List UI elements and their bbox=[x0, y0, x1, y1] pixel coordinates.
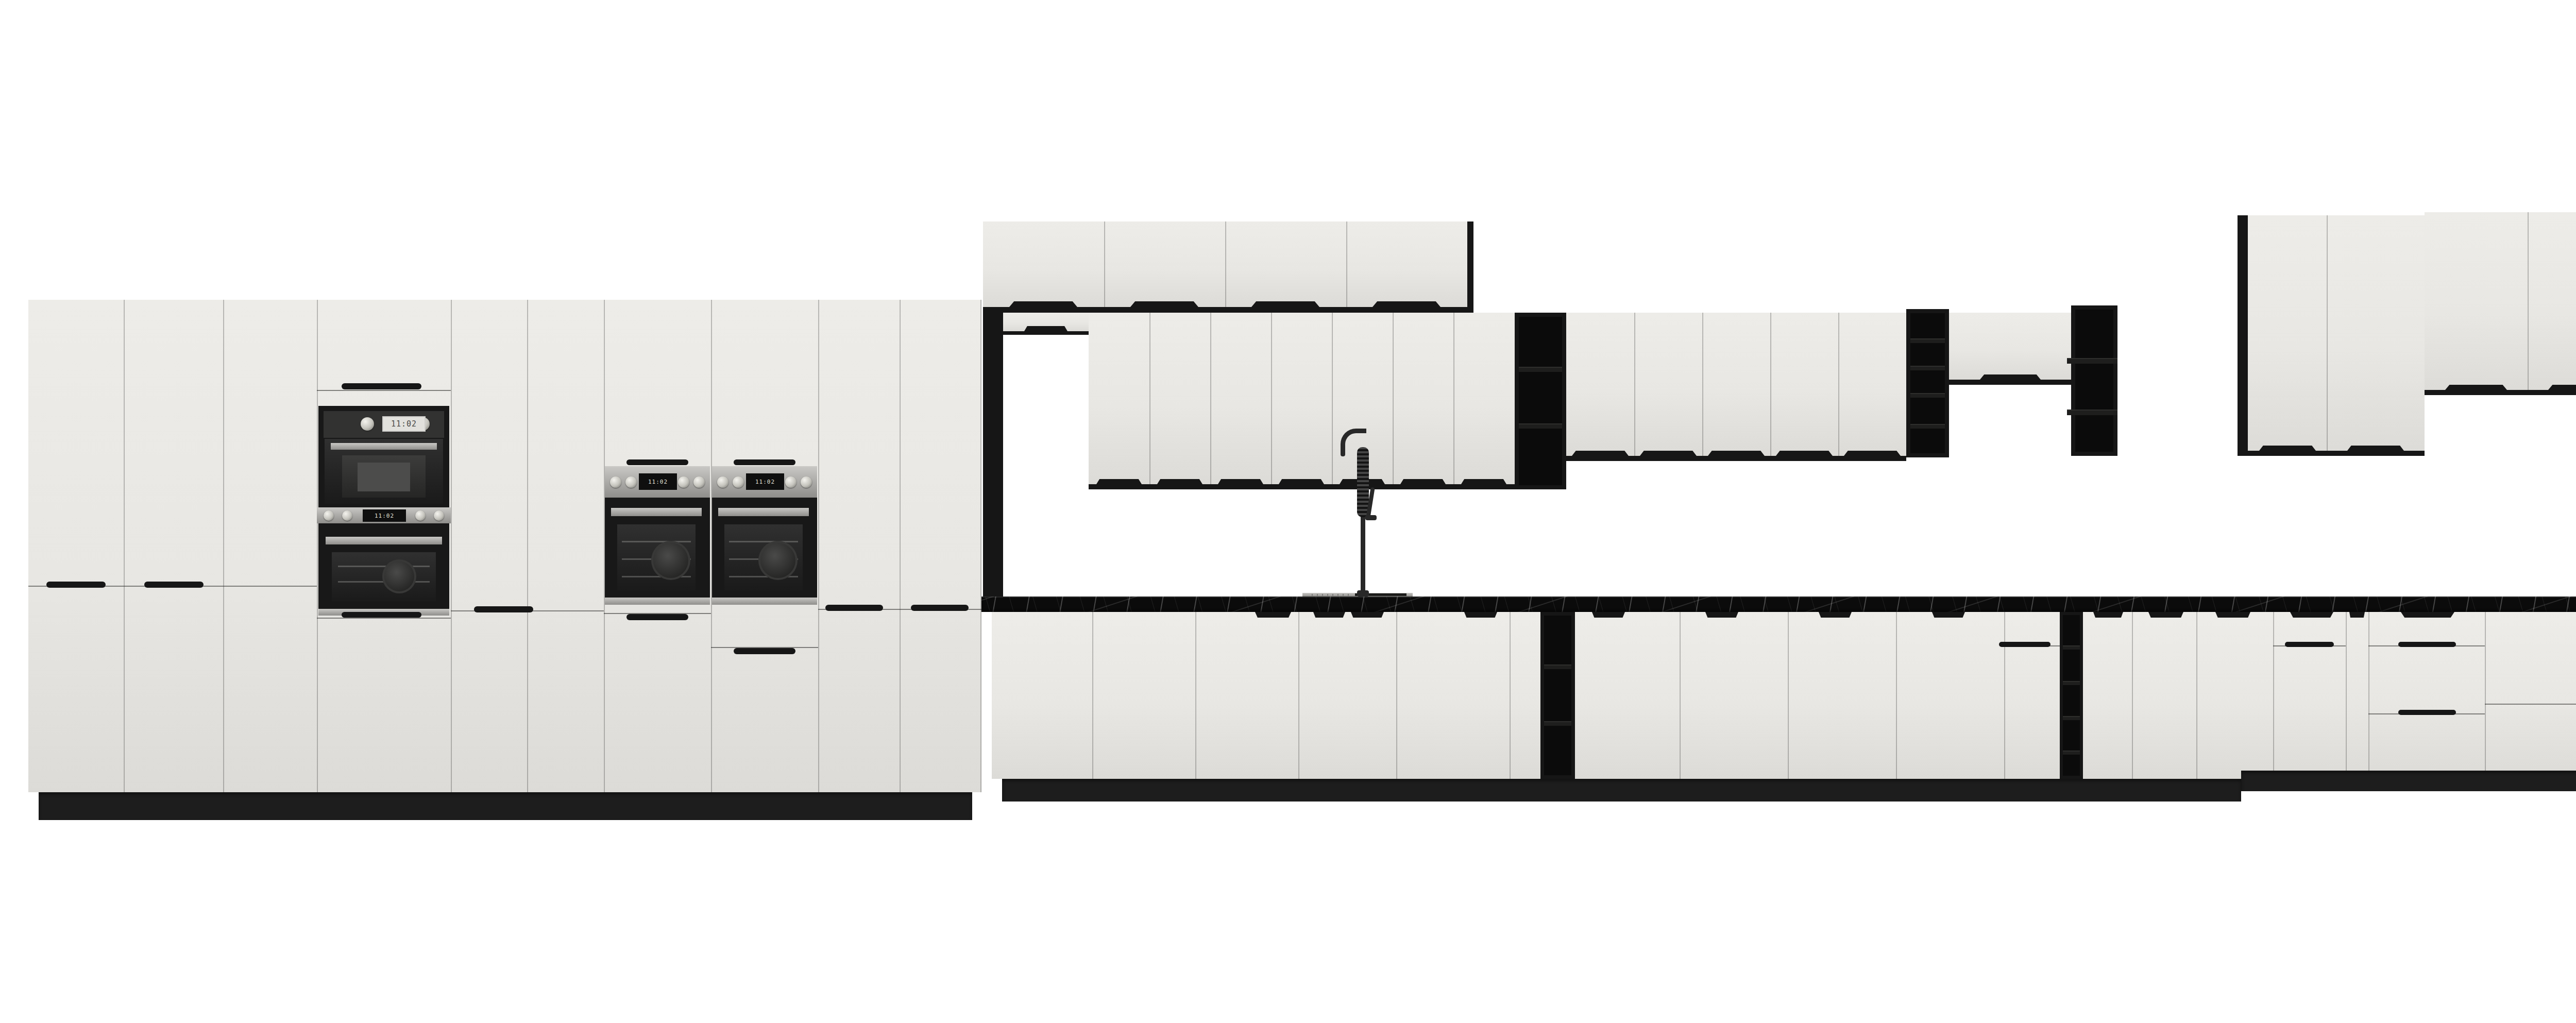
handle-tab bbox=[1980, 374, 2041, 380]
shelf-board bbox=[1519, 367, 1562, 372]
recessed-handle bbox=[911, 605, 969, 611]
faucet-lever-paddle bbox=[1365, 515, 1377, 520]
recessed-handle bbox=[626, 459, 688, 465]
cabinet-side-panel bbox=[2238, 215, 2248, 456]
handle-tab bbox=[1776, 451, 1833, 456]
tower-oven bbox=[318, 523, 449, 610]
handle-tab bbox=[1313, 612, 1345, 618]
oven-rack bbox=[622, 541, 691, 542]
cabinet-bottom-rail bbox=[1566, 456, 1906, 461]
handle-tab bbox=[1640, 451, 1697, 456]
door-seam bbox=[223, 300, 224, 792]
handle-tab bbox=[1157, 479, 1202, 484]
shelf-board bbox=[2063, 751, 2080, 755]
faucet-spout-tip bbox=[1341, 444, 1345, 456]
door-seam bbox=[2368, 612, 2369, 779]
tower-oven-control-band: 11:02 bbox=[317, 507, 451, 523]
door-seam bbox=[1838, 313, 1839, 456]
door-seam bbox=[2346, 612, 2347, 779]
door-seam bbox=[1396, 612, 1397, 779]
recessed-handle bbox=[474, 606, 533, 612]
plinth-left bbox=[39, 792, 972, 820]
handle-tab bbox=[1372, 301, 1440, 307]
oven-handle-bar bbox=[611, 508, 702, 516]
cabinet-side-panel bbox=[1467, 221, 1473, 313]
plinth-mid bbox=[1002, 779, 2241, 802]
recessed-handle bbox=[46, 582, 106, 588]
door-seam bbox=[1702, 313, 1703, 456]
oven-knob bbox=[434, 510, 444, 521]
door-seam bbox=[1634, 313, 1635, 456]
door-seam bbox=[1104, 221, 1105, 307]
door-seam bbox=[2485, 612, 2486, 779]
handle-tab bbox=[2259, 446, 2316, 451]
shelf-board bbox=[1910, 393, 1945, 398]
shelf-board bbox=[1544, 664, 1571, 669]
door-seam bbox=[2196, 612, 2197, 779]
oven-knob bbox=[610, 476, 621, 488]
door-seam bbox=[2004, 612, 2005, 779]
oven-knob bbox=[733, 476, 744, 488]
shelf-board bbox=[1519, 423, 1562, 429]
cabinet-bottom-rail bbox=[983, 307, 1473, 313]
shelf-board bbox=[1544, 721, 1571, 726]
faucet-riser bbox=[1361, 515, 1365, 596]
oven-knob bbox=[324, 510, 334, 521]
countertop bbox=[981, 596, 2576, 612]
oven-handle-bar bbox=[718, 508, 809, 516]
recessed-handle bbox=[2398, 710, 2456, 715]
tall-cabinet-run-left bbox=[28, 300, 981, 792]
recessed-handle bbox=[144, 582, 204, 588]
handle-tab bbox=[2148, 612, 2183, 618]
door-seam bbox=[1510, 612, 1511, 779]
oven-bottom-trim bbox=[605, 598, 710, 605]
door-seam bbox=[1271, 313, 1272, 484]
recessed-handle bbox=[2398, 642, 2456, 647]
door-seam bbox=[1346, 221, 1347, 307]
handle-tab bbox=[2349, 612, 2365, 618]
handle-tab bbox=[1400, 479, 1446, 484]
shelf-board bbox=[2067, 410, 2117, 415]
microwave-window bbox=[342, 455, 426, 498]
door-seam bbox=[1453, 313, 1454, 484]
door-seam bbox=[1332, 313, 1333, 484]
door-seam bbox=[900, 300, 901, 792]
handle-tab bbox=[2290, 612, 2333, 618]
microwave-control-strip: 11:02 bbox=[324, 411, 444, 438]
handle-tab bbox=[1024, 326, 1067, 331]
door-seam bbox=[451, 300, 452, 792]
oven-display-panel: 11:02 bbox=[363, 509, 406, 522]
recessed-handle bbox=[342, 612, 421, 618]
handle-tab bbox=[1351, 612, 1384, 618]
right-wall-row-deep bbox=[2248, 215, 2425, 456]
round-baking-tray bbox=[382, 559, 416, 593]
oven-knob bbox=[625, 476, 637, 488]
handle-tab bbox=[1705, 612, 1738, 618]
door-split-line bbox=[317, 390, 451, 391]
handle-tab bbox=[2445, 385, 2507, 390]
ladder-shelf-column bbox=[1906, 309, 1949, 457]
oven-knob bbox=[693, 476, 705, 488]
handle-tab bbox=[1592, 612, 1625, 618]
door-seam bbox=[1210, 313, 1211, 484]
wall-oven bbox=[605, 498, 710, 598]
handle-tab bbox=[2548, 385, 2576, 390]
door-seam bbox=[1195, 612, 1196, 779]
cabinet-bottom-rail bbox=[1089, 484, 1515, 489]
wall-oven-control-band: 11:02 bbox=[712, 466, 817, 498]
shelf-board bbox=[1910, 424, 1945, 429]
handle-tab bbox=[1218, 479, 1263, 484]
oven-rack bbox=[338, 566, 430, 567]
recessed-handle bbox=[342, 383, 421, 389]
cabinet-bottom-rail bbox=[1949, 380, 2071, 385]
short-wall-cabinet bbox=[1949, 313, 2071, 380]
round-baking-tray bbox=[651, 541, 690, 580]
microwave-clock-display: 11:02 bbox=[382, 416, 426, 432]
oven-display-panel: 11:02 bbox=[639, 473, 677, 490]
drawer-seam bbox=[317, 618, 451, 619]
oven-clock-text: 11:02 bbox=[648, 479, 668, 485]
faucet-spring-coil bbox=[1357, 447, 1369, 517]
oven-rack bbox=[729, 541, 798, 542]
door-seam bbox=[2528, 212, 2529, 395]
run-end-edge bbox=[980, 300, 981, 792]
cabinet-bottom-rail bbox=[2248, 451, 2425, 456]
open-shelf-unit-upper bbox=[1515, 313, 1566, 489]
door-seam bbox=[527, 300, 528, 792]
handle-tab bbox=[2215, 612, 2250, 618]
handle-tab bbox=[1844, 451, 1901, 456]
wall-oven bbox=[712, 498, 817, 598]
oven-door-glass bbox=[332, 552, 436, 602]
handle-tab bbox=[1708, 451, 1765, 456]
door-seam bbox=[1770, 313, 1771, 456]
handle-tab bbox=[1572, 451, 1629, 456]
sink-wall-cabinet-row bbox=[1089, 313, 1515, 484]
door-seam bbox=[2132, 612, 2133, 779]
door-seam bbox=[2327, 215, 2328, 456]
handle-tab bbox=[1255, 612, 1291, 618]
shelf-board bbox=[2063, 645, 2080, 650]
faucet-base-flange bbox=[1357, 590, 1369, 596]
recessed-handle bbox=[734, 648, 795, 654]
recessed-handle bbox=[825, 605, 883, 611]
door-seam bbox=[1680, 612, 1681, 779]
door-seam bbox=[2273, 612, 2274, 779]
wall-oven-control-band: 11:02 bbox=[605, 466, 710, 498]
cabinet-bottom-rail bbox=[2425, 390, 2576, 395]
recessed-handle bbox=[1999, 642, 2050, 647]
door-seam bbox=[1149, 313, 1150, 484]
handle-tab bbox=[2401, 612, 2454, 618]
open-shelf-column bbox=[2071, 305, 2117, 456]
plinth-right bbox=[2241, 771, 2576, 791]
base-cabinet-run bbox=[992, 612, 2576, 779]
wall-cabinet-run-b bbox=[1566, 313, 1906, 456]
kitchen-elevation: 11:02 11:02 bbox=[0, 0, 2576, 1023]
door-seam bbox=[1225, 221, 1226, 307]
oven-clock-text: 11:02 bbox=[755, 479, 775, 485]
cabinet-bottom-rail bbox=[1003, 331, 1089, 335]
handle-tab bbox=[1464, 612, 1497, 618]
door-seam bbox=[1788, 612, 1789, 779]
door-seam bbox=[1092, 612, 1093, 779]
oven-door-glass bbox=[617, 524, 696, 590]
door-seam bbox=[1298, 612, 1299, 779]
oven-knob bbox=[678, 476, 689, 488]
round-baking-tray bbox=[758, 541, 798, 580]
microwave-window-inner bbox=[358, 463, 410, 491]
oven-knob bbox=[342, 510, 352, 521]
shelf-board bbox=[1910, 338, 1945, 343]
handle-tab bbox=[1096, 479, 1142, 484]
oven-knob bbox=[717, 476, 728, 488]
handle-tab bbox=[1130, 301, 1198, 307]
door-seam bbox=[124, 300, 125, 792]
microwave-clock-text: 11:02 bbox=[391, 420, 417, 428]
oven-knob bbox=[785, 476, 796, 488]
door-seam bbox=[1393, 313, 1394, 484]
handle-tab bbox=[1461, 479, 1506, 484]
open-base-unit bbox=[1540, 612, 1575, 779]
shelf-board bbox=[2063, 716, 2080, 720]
handle-tab bbox=[1819, 612, 1852, 618]
handle-tab bbox=[2347, 446, 2404, 451]
handle-tab bbox=[2093, 612, 2123, 618]
oven-clock-text: 11:02 bbox=[375, 513, 394, 519]
shelf-board bbox=[2067, 358, 2117, 364]
handle-tab bbox=[1279, 479, 1324, 484]
handle-tab bbox=[1932, 612, 1965, 618]
microwave-knob bbox=[361, 417, 374, 431]
microwave-handle-bar bbox=[331, 443, 437, 450]
microwave: 11:02 bbox=[318, 406, 449, 509]
door-seam bbox=[818, 300, 819, 792]
oven-knob bbox=[801, 476, 812, 488]
oven-bottom-trim bbox=[712, 598, 817, 605]
right-wall-row bbox=[2425, 212, 2576, 395]
door-seam bbox=[317, 300, 318, 792]
handle-tab bbox=[1009, 301, 1077, 307]
handle-tab bbox=[1251, 301, 1319, 307]
recessed-handle bbox=[2285, 642, 2334, 647]
sink-drainer-grooves bbox=[1308, 594, 1352, 596]
oven-knob bbox=[415, 510, 426, 521]
recessed-handle bbox=[734, 459, 795, 465]
shelf-board bbox=[1910, 366, 1945, 370]
oven-handle-bar bbox=[326, 537, 442, 544]
oven-door-glass bbox=[724, 524, 803, 590]
shelf-board bbox=[2063, 681, 2080, 685]
recessed-handle bbox=[626, 614, 688, 620]
door-seam bbox=[1896, 612, 1897, 779]
drawer-seam bbox=[2485, 704, 2576, 705]
microwave-door-glass bbox=[325, 439, 443, 504]
tall-end-post bbox=[983, 313, 1003, 596]
oven-display-panel: 11:02 bbox=[746, 473, 784, 490]
